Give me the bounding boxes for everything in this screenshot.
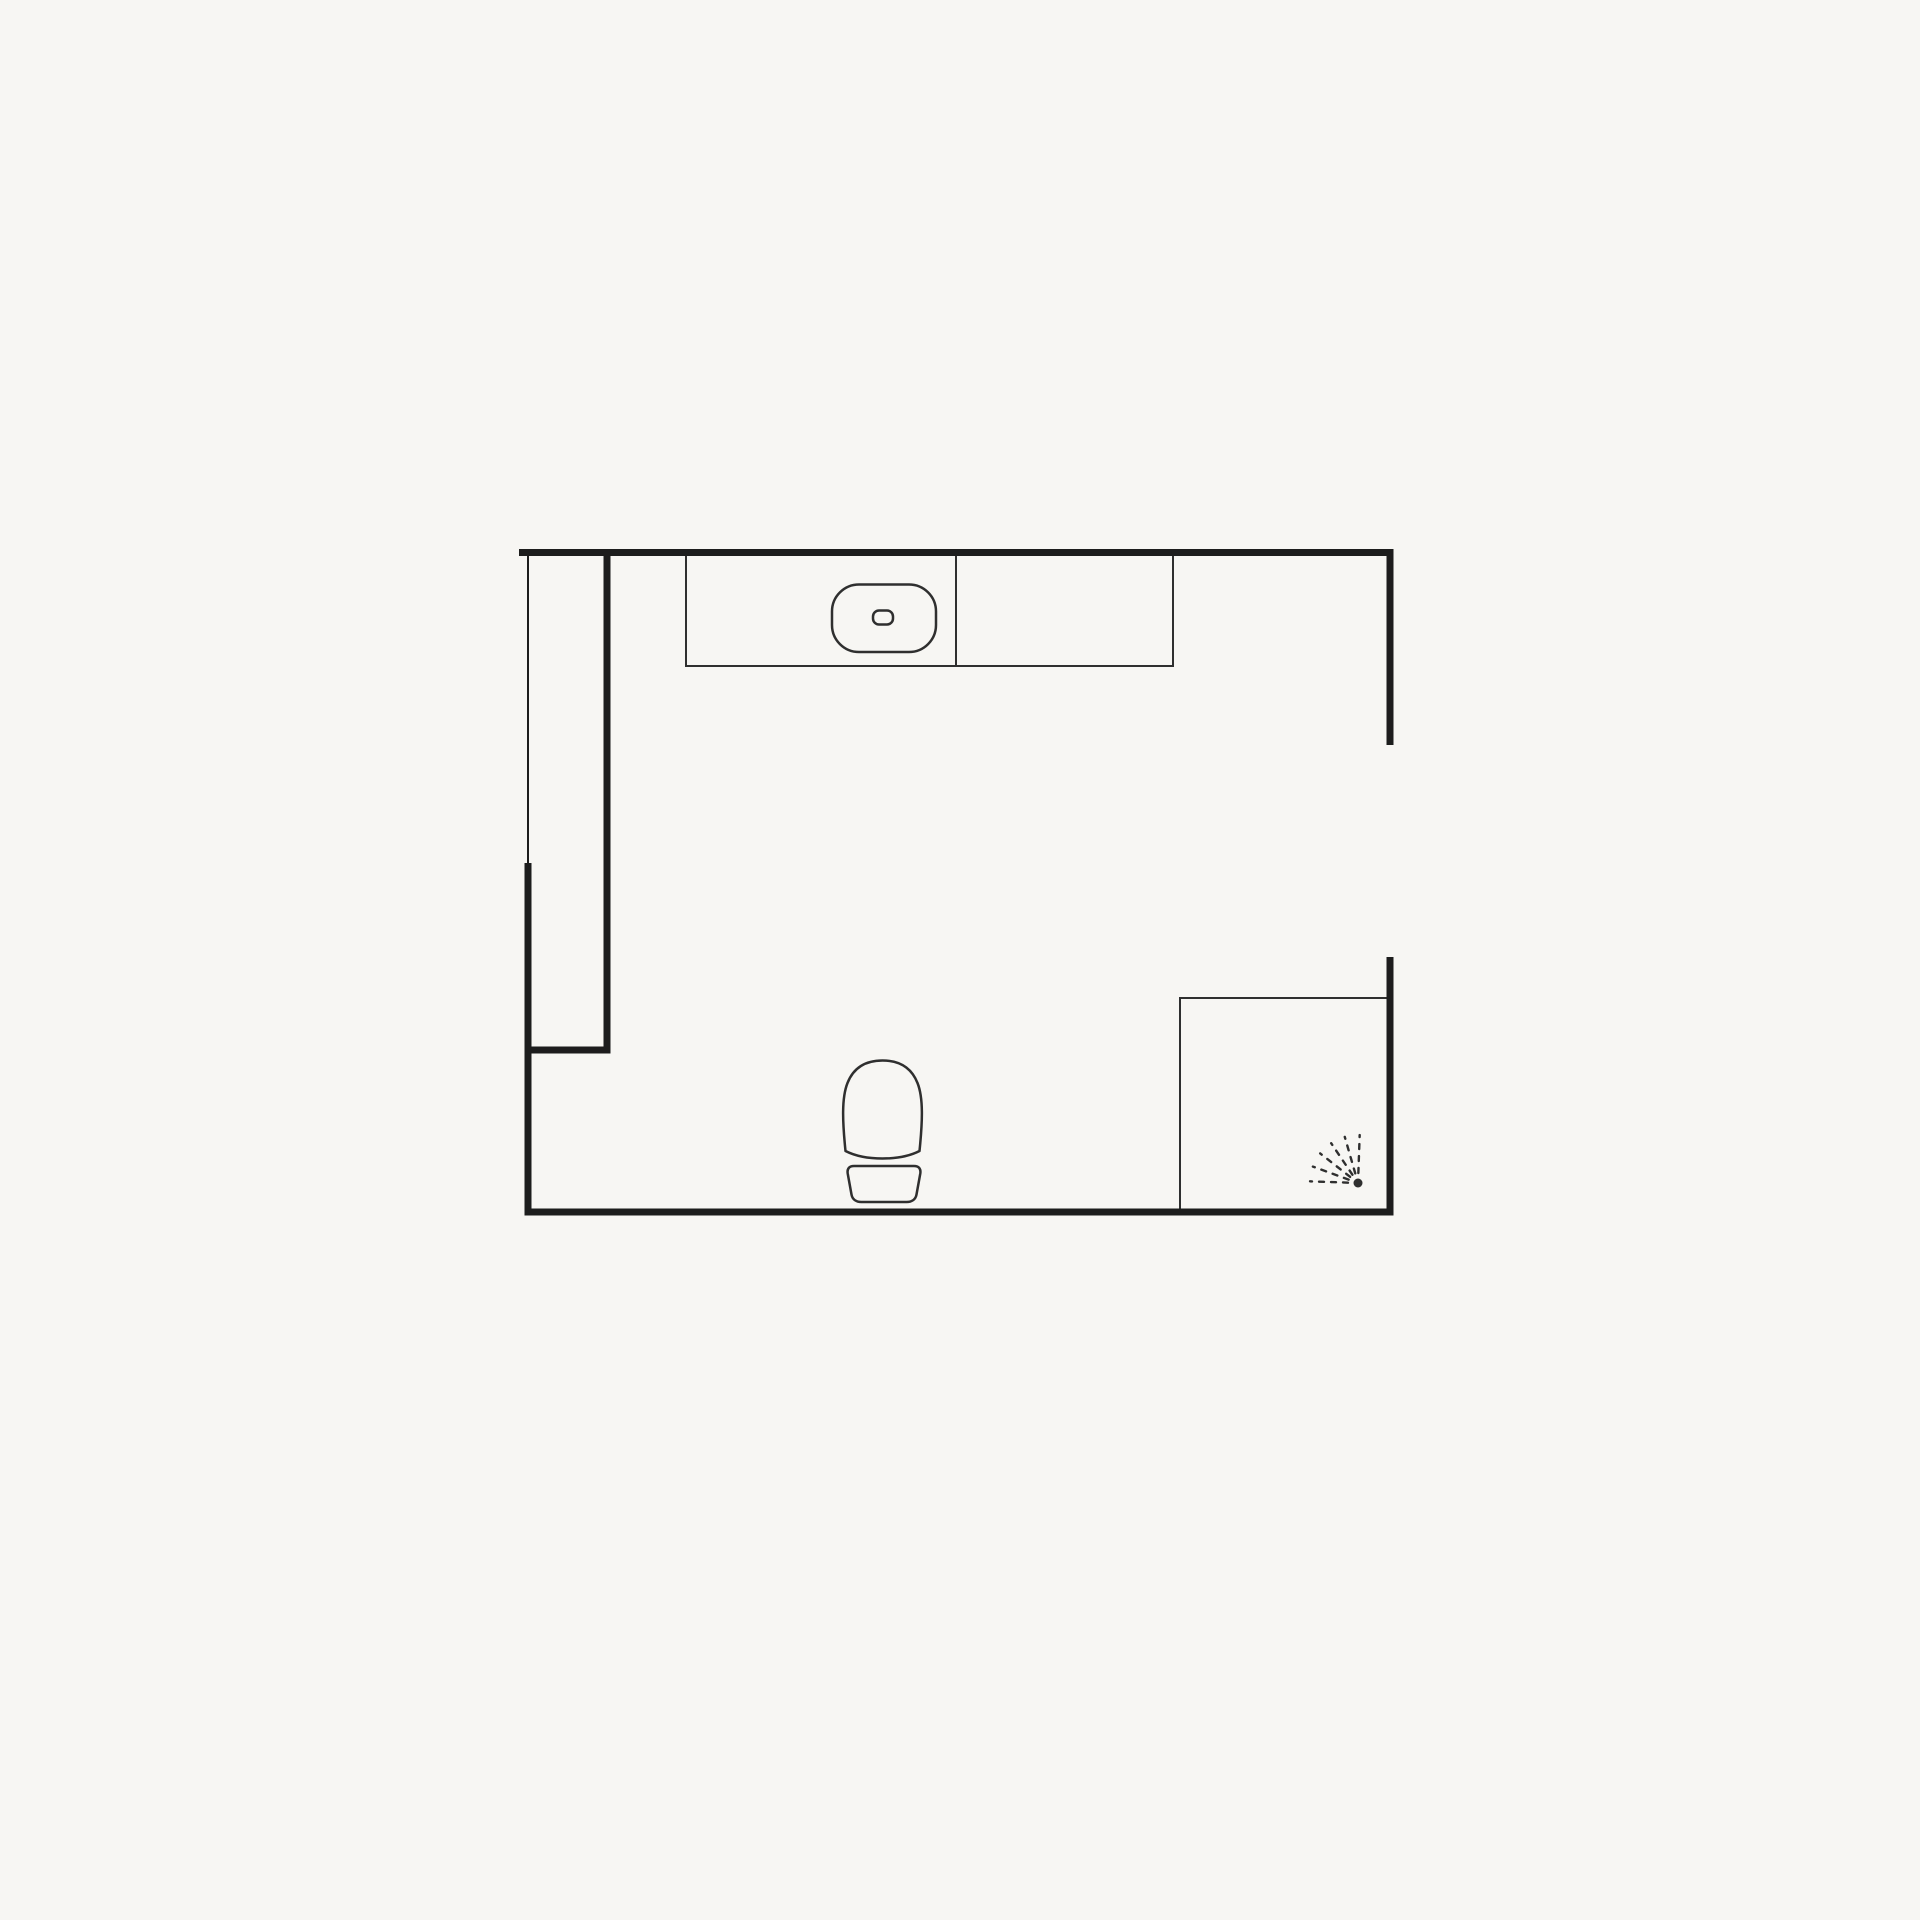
fixtures-layer [686, 553, 1390, 1212]
floor-plan-stage [0, 0, 1920, 1920]
shower-spray-ray-2 [1331, 1143, 1352, 1175]
shower-spray-ray-5 [1310, 1181, 1348, 1182]
shower-spray-ray-1 [1345, 1137, 1355, 1174]
floor-plan-drawing [0, 0, 1920, 1920]
toilet-bowl [843, 1061, 922, 1159]
vanity-counter [686, 553, 1173, 666]
sink-drain [873, 611, 893, 625]
shower-spray-ray-0 [1358, 1135, 1359, 1173]
toilet-tank [848, 1166, 921, 1202]
shower-spray-emitter-dot [1354, 1179, 1363, 1188]
shower-spray-icon [1310, 1135, 1362, 1187]
sink-basin [832, 585, 936, 653]
shower-spray-ray-4 [1313, 1167, 1349, 1180]
